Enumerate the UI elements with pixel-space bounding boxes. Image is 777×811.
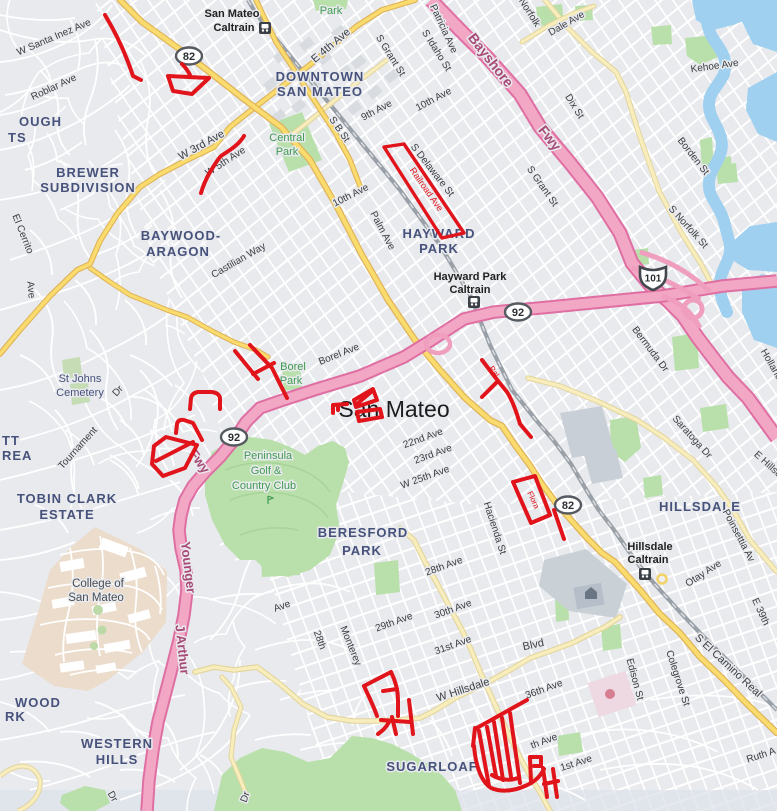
svg-text:82: 82 (562, 500, 574, 512)
svg-text:Peninsula: Peninsula (244, 450, 293, 462)
svg-text:BAYWOOD-: BAYWOOD- (141, 228, 221, 243)
svg-text:Country Club: Country Club (232, 480, 296, 492)
svg-text:BREWER: BREWER (56, 165, 120, 180)
svg-text:Cemetery: Cemetery (56, 387, 104, 399)
svg-text:Golf &: Golf & (251, 465, 282, 477)
svg-text:Central: Central (269, 132, 304, 144)
svg-text:WOOD: WOOD (15, 695, 61, 710)
svg-text:Hayward Park: Hayward Park (434, 271, 508, 283)
svg-text:San Mateo: San Mateo (204, 8, 259, 20)
svg-text:PARK: PARK (342, 543, 382, 558)
svg-text:Park: Park (280, 375, 303, 387)
svg-text:Hillsdale: Hillsdale (627, 541, 672, 553)
svg-text:TS: TS (8, 130, 27, 145)
svg-text:BERESFORD: BERESFORD (318, 525, 409, 540)
svg-text:Park: Park (320, 5, 343, 17)
svg-text:Ave: Ave (24, 281, 36, 299)
svg-text:Caltrain: Caltrain (628, 554, 669, 566)
svg-text:92: 92 (512, 307, 524, 319)
svg-text:Caltrain: Caltrain (450, 284, 491, 296)
svg-text:TT: TT (2, 433, 20, 448)
svg-text:San Mateo: San Mateo (68, 592, 124, 604)
svg-text:RK: RK (5, 709, 26, 724)
svg-text:DOWNTOWN: DOWNTOWN (276, 69, 365, 84)
svg-text:SUBDIVISION: SUBDIVISION (40, 180, 136, 195)
svg-text:PARK: PARK (419, 241, 459, 256)
svg-text:ARAGON: ARAGON (146, 244, 210, 259)
svg-text:92: 92 (228, 432, 240, 444)
svg-text:TOBIN CLARK: TOBIN CLARK (17, 491, 117, 506)
svg-text:Borel: Borel (280, 361, 306, 373)
svg-text:SUGARLOAF: SUGARLOAF (386, 759, 477, 774)
svg-text:101: 101 (645, 274, 662, 285)
svg-text:REA: REA (2, 448, 32, 463)
svg-text:Caltrain: Caltrain (214, 22, 255, 34)
svg-text:St Johns: St Johns (59, 373, 102, 385)
svg-text:Park: Park (276, 146, 299, 158)
svg-text:WESTERN: WESTERN (81, 736, 153, 751)
svg-text:OUGH: OUGH (19, 114, 62, 129)
svg-text:ESTATE: ESTATE (39, 507, 94, 522)
svg-text:College of: College of (72, 578, 125, 590)
svg-text:HILLS: HILLS (96, 752, 139, 767)
svg-text:SAN MATEO: SAN MATEO (277, 84, 363, 99)
svg-text:82: 82 (183, 51, 195, 63)
